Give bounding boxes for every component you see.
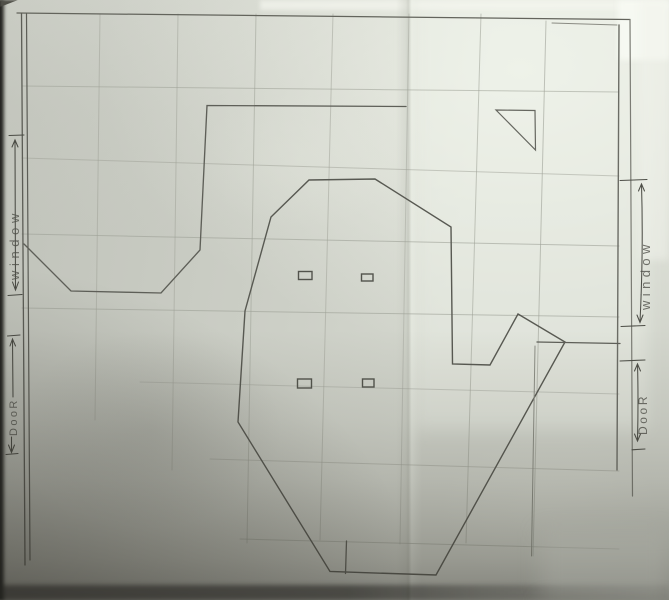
svg-text:DooR: DooR bbox=[636, 394, 650, 435]
svg-text:DooR: DooR bbox=[8, 398, 20, 436]
svg-text:window: window bbox=[7, 209, 22, 281]
svg-text:window: window bbox=[638, 240, 653, 311]
